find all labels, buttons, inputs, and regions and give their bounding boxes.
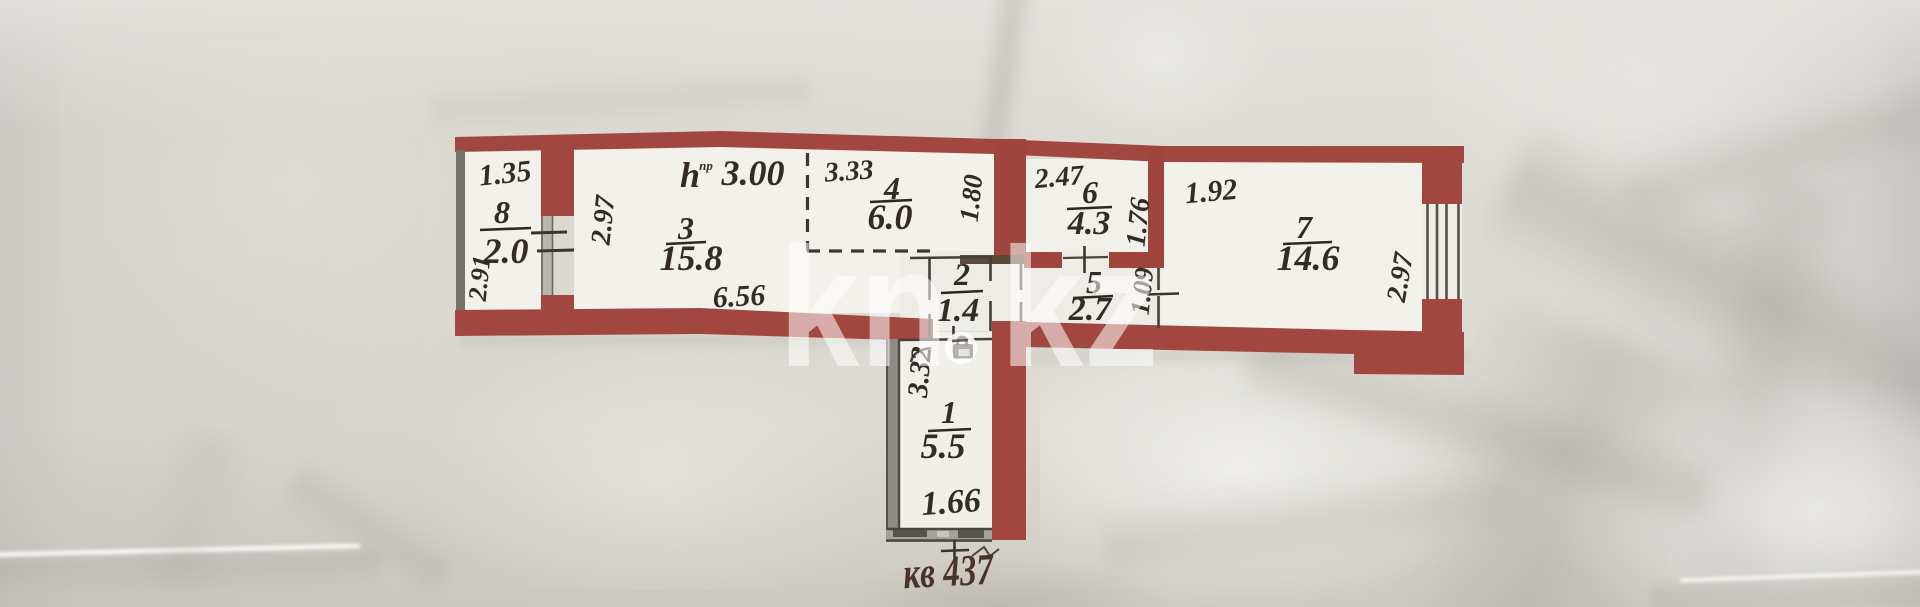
svg-text:kn: kn [779, 213, 949, 403]
svg-text:1.35: 1.35 [477, 154, 533, 192]
svg-text:3.33: 3.33 [823, 154, 875, 188]
svg-text:2: 2 [953, 256, 970, 292]
svg-text:3.00: 3.00 [721, 153, 785, 193]
svg-text:2.97: 2.97 [585, 193, 621, 247]
svg-text:1.66: 1.66 [920, 482, 982, 523]
svg-text:8: 8 [494, 194, 510, 230]
svg-text:2.91: 2.91 [463, 254, 497, 303]
svg-text:6.56: 6.56 [712, 279, 766, 315]
svg-text:кв 437: кв 437 [902, 545, 996, 599]
svg-text:2.47: 2.47 [1032, 160, 1086, 195]
svg-text:1.80: 1.80 [954, 173, 989, 224]
svg-text:h: h [680, 155, 700, 195]
svg-text:14.6: 14.6 [1277, 238, 1340, 278]
svg-text:15.8: 15.8 [660, 238, 723, 278]
svg-text:kz: kz [1000, 213, 1159, 403]
svg-text:5.5: 5.5 [921, 426, 966, 466]
svg-text:пр: пр [699, 158, 713, 173]
svg-text:1.92: 1.92 [1184, 173, 1239, 210]
